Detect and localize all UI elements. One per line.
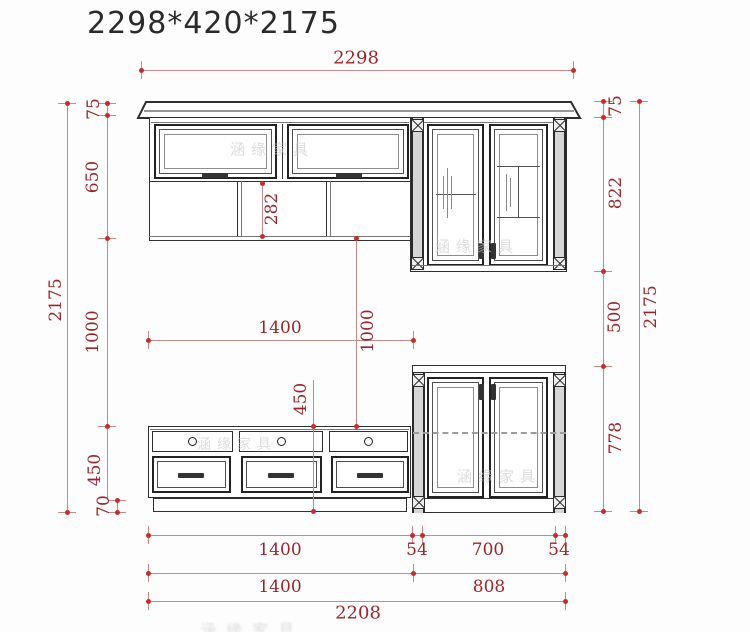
dim-mid-gap: 1000 bbox=[358, 309, 378, 352]
dim-line bbox=[603, 101, 604, 511]
wall-cabinet-left-top-rail bbox=[151, 122, 409, 123]
dim-point bbox=[65, 101, 70, 106]
dim-point bbox=[260, 181, 265, 186]
dim-line bbox=[148, 535, 565, 536]
shelf-dashed-line bbox=[413, 432, 566, 434]
tv-stand-top-line bbox=[150, 429, 409, 430]
dim-left-stand: 450 bbox=[85, 454, 105, 486]
dim-line bbox=[356, 238, 357, 426]
tv-stand-plinth bbox=[153, 498, 407, 512]
watermark: 涵缘家具 bbox=[230, 139, 314, 160]
watermark: 涵缘家具 bbox=[197, 434, 277, 454]
dim-line bbox=[639, 101, 640, 511]
dim-point bbox=[601, 99, 606, 104]
watermark-bottom: 涵缘家具 bbox=[200, 617, 465, 632]
drawer-knob bbox=[364, 437, 373, 446]
dim-point bbox=[311, 424, 316, 429]
corner-block bbox=[553, 119, 566, 132]
dim-point bbox=[146, 338, 151, 343]
dim-mid-stand: 450 bbox=[291, 383, 311, 415]
dim-point bbox=[601, 364, 606, 369]
glass-shine bbox=[451, 176, 452, 209]
dim-point bbox=[105, 236, 110, 241]
dim-point bbox=[411, 338, 416, 343]
dim-point bbox=[563, 571, 568, 576]
dim-point bbox=[115, 498, 120, 503]
corner-block bbox=[553, 374, 566, 387]
dim-left-crown: 75 bbox=[84, 98, 104, 120]
dim-b1-pilaster: 54 bbox=[548, 540, 570, 560]
dim-point bbox=[410, 533, 415, 538]
drawing-title: 2298*420*2175 bbox=[87, 6, 340, 41]
corner-block bbox=[553, 257, 566, 270]
dim-point bbox=[260, 234, 265, 239]
dim-top-width: 2298 bbox=[333, 48, 379, 69]
dim-b2-right: 808 bbox=[473, 577, 505, 597]
dim-mid-shelf: 282 bbox=[262, 193, 282, 225]
dim-b1-mid: 700 bbox=[472, 540, 504, 560]
dim-point bbox=[354, 236, 359, 241]
glass-mullion bbox=[436, 194, 476, 195]
shelf-divider bbox=[241, 181, 242, 237]
base-cabinet-plinth bbox=[424, 498, 554, 513]
dim-line bbox=[141, 70, 573, 71]
corner-block bbox=[553, 496, 566, 509]
dim-right-gap: 500 bbox=[605, 301, 625, 333]
drawer-knob bbox=[277, 437, 286, 446]
corner-block bbox=[411, 119, 424, 132]
dim-point bbox=[420, 533, 425, 538]
glass-shine bbox=[510, 178, 511, 207]
watermark: 涵缘家具 bbox=[457, 466, 541, 487]
dim-b1-left: 1400 bbox=[258, 540, 301, 560]
shelf-bottom-line bbox=[149, 236, 411, 237]
dim-mid-width: 1400 bbox=[258, 318, 301, 338]
flip-door-2-handle bbox=[336, 173, 362, 178]
dim-left-upper: 650 bbox=[83, 161, 103, 193]
pilaster-left bbox=[412, 373, 425, 513]
glass-shine bbox=[447, 168, 448, 218]
corner-block bbox=[412, 374, 425, 387]
dim-left-plinth: 70 bbox=[94, 495, 114, 517]
dim-left-gap: 1000 bbox=[83, 310, 103, 353]
dim-point bbox=[563, 533, 568, 538]
pilaster-left bbox=[411, 118, 424, 270]
drawer-knob bbox=[188, 437, 197, 446]
dim-point bbox=[354, 424, 359, 429]
dim-point bbox=[146, 571, 151, 576]
dim-point bbox=[553, 533, 558, 538]
shelf-divider bbox=[237, 181, 238, 237]
glass-shine bbox=[506, 174, 507, 211]
dim-point bbox=[601, 115, 606, 120]
glass-mullion bbox=[518, 166, 519, 218]
dim-point bbox=[146, 599, 151, 604]
dim-point bbox=[146, 533, 151, 538]
base-cabinet-top-rail bbox=[412, 365, 566, 373]
corner-block bbox=[411, 257, 424, 270]
base-door-1-handle bbox=[479, 384, 484, 400]
dim-point bbox=[105, 101, 110, 106]
dim-line bbox=[107, 103, 108, 500]
dim-line bbox=[313, 380, 314, 511]
dim-right-total: 2175 bbox=[641, 285, 661, 328]
wall-cabinet-right-top-rail bbox=[412, 122, 565, 123]
dim-point bbox=[311, 509, 316, 514]
drawer-2-handle bbox=[268, 473, 294, 478]
drawer-3-handle bbox=[357, 473, 383, 478]
dim-right-upper: 822 bbox=[606, 177, 626, 209]
wall-cabinet-right-bottom-line bbox=[412, 265, 565, 266]
dim-point bbox=[115, 510, 120, 515]
dim-point bbox=[601, 269, 606, 274]
dim-point bbox=[105, 113, 110, 118]
dim-left-total: 2175 bbox=[46, 278, 66, 321]
dim-line bbox=[67, 103, 68, 512]
shelf-divider bbox=[330, 181, 331, 237]
dim-point bbox=[601, 509, 606, 514]
pilaster-right bbox=[553, 373, 566, 513]
dim-b2-left: 1400 bbox=[258, 577, 301, 597]
dim-point bbox=[563, 599, 568, 604]
dim-right-crown: 75 bbox=[606, 95, 626, 117]
cabinet-elevation-drawing: 2298*420*2175 bbox=[0, 0, 750, 632]
base-door-2-handle bbox=[491, 384, 496, 400]
dim-line bbox=[148, 573, 565, 574]
pilaster-right bbox=[553, 118, 566, 270]
watermark: 涵缘家具 bbox=[435, 236, 519, 257]
dim-point bbox=[571, 68, 576, 73]
dim-point bbox=[65, 510, 70, 515]
glass-shine bbox=[443, 176, 444, 209]
dim-point bbox=[105, 424, 110, 429]
flip-door-1-handle bbox=[202, 173, 228, 178]
dim-right-lower: 778 bbox=[606, 422, 626, 454]
dim-b3-total: 2208 bbox=[335, 603, 381, 624]
shelf-divider bbox=[326, 181, 327, 237]
dim-point bbox=[637, 99, 642, 104]
dim-point bbox=[637, 509, 642, 514]
shelf-top-line bbox=[149, 181, 411, 182]
dim-b1-pilaster: 54 bbox=[406, 540, 428, 560]
drawer-1-handle bbox=[178, 473, 204, 478]
dim-point bbox=[139, 68, 144, 73]
dim-point bbox=[411, 571, 416, 576]
